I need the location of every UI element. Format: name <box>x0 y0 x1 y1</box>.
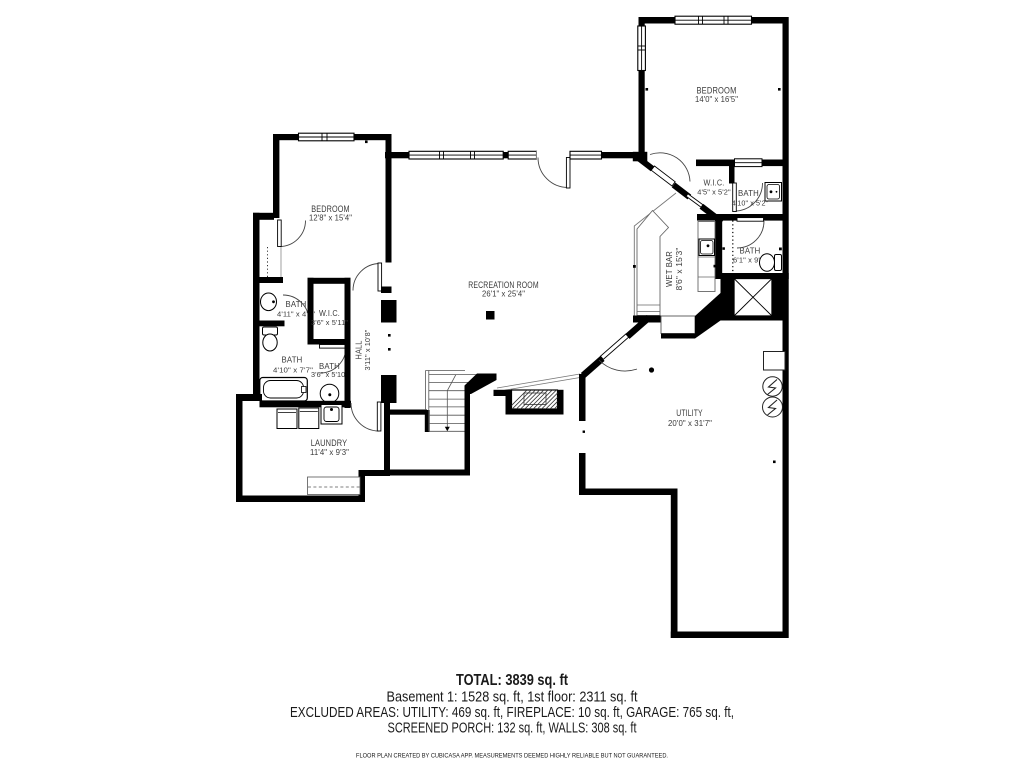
svg-text:SCREENED PORCH: 132 sq. ft, WA: SCREENED PORCH: 132 sq. ft, WALLS: 308 s… <box>388 721 637 737</box>
svg-text:20'0" x 31'7": 20'0" x 31'7" <box>668 418 712 428</box>
svg-text:FLOOR PLAN CREATED BY CUBICASA: FLOOR PLAN CREATED BY CUBICASA APP. MEAS… <box>356 753 668 760</box>
svg-text:3'6" x 5'10": 3'6" x 5'10" <box>311 370 348 379</box>
svg-text:Basement 1: 1528 sq. ft, 1st f: Basement 1: 1528 sq. ft, 1st floor: 2311… <box>387 690 638 706</box>
svg-text:4'10" x 7'7": 4'10" x 7'7" <box>273 366 313 375</box>
svg-text:W.I.C.: W.I.C. <box>319 309 340 318</box>
svg-text:14'0" x 16'5": 14'0" x 16'5" <box>695 94 738 104</box>
svg-text:8'6" x 15'3": 8'6" x 15'3" <box>675 247 684 290</box>
svg-text:11'4" x 9'3": 11'4" x 9'3" <box>310 447 349 457</box>
svg-text:26'1" x 25'4": 26'1" x 25'4" <box>482 289 525 299</box>
svg-text:UTILITY: UTILITY <box>676 408 703 418</box>
svg-text:4'5" x 5'2": 4'5" x 5'2" <box>697 188 731 197</box>
svg-text:12'8" x 15'4": 12'8" x 15'4" <box>309 213 352 223</box>
svg-text:3'11" x 10'8": 3'11" x 10'8" <box>363 329 372 370</box>
svg-text:3'6" x 5'11": 3'6" x 5'11" <box>311 318 348 327</box>
svg-text:WET BAR: WET BAR <box>664 251 674 287</box>
svg-text:BATH: BATH <box>740 247 761 256</box>
svg-text:TOTAL: 3839 sq. ft: TOTAL: 3839 sq. ft <box>456 672 568 689</box>
svg-text:BATH: BATH <box>738 189 759 198</box>
svg-text:W.I.C.: W.I.C. <box>704 179 725 188</box>
svg-text:BATH: BATH <box>282 356 303 365</box>
svg-text:EXCLUDED AREAS: UTILITY: 469 s: EXCLUDED AREAS: UTILITY: 469 sq. ft, FIR… <box>290 705 734 721</box>
svg-text:4'10" x 5'2": 4'10" x 5'2" <box>732 199 769 208</box>
